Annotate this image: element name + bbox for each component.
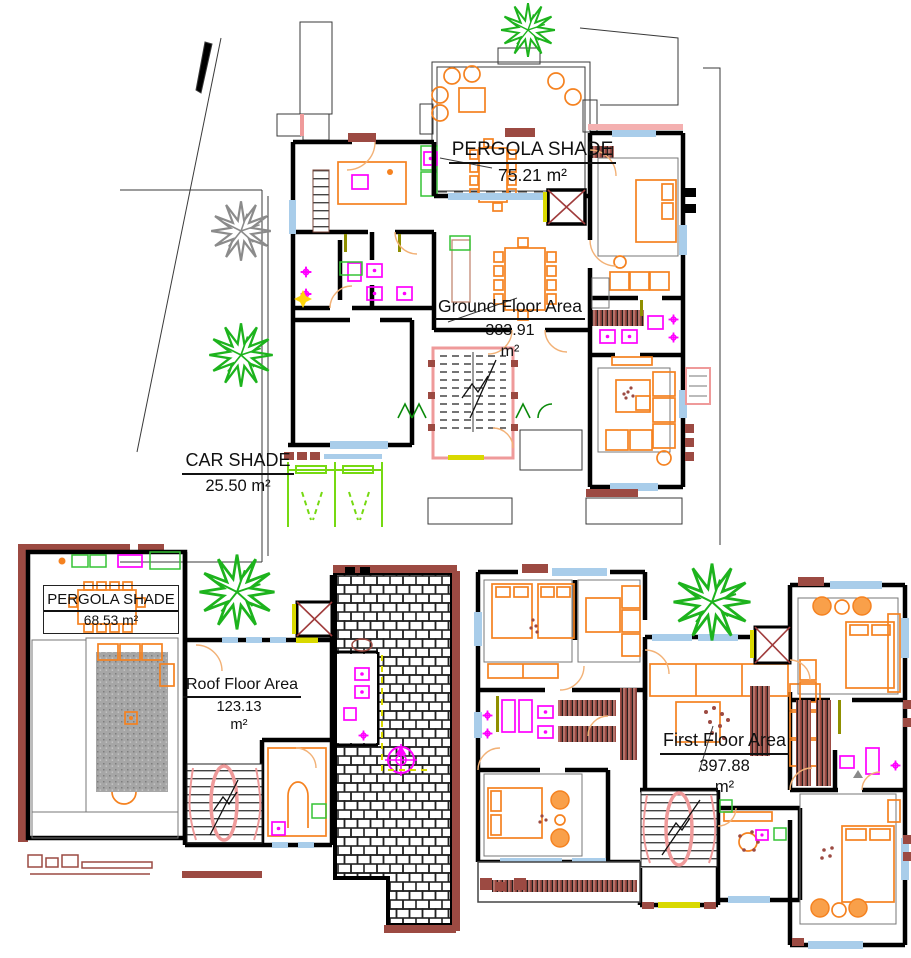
floor-area-unit: m² bbox=[642, 777, 807, 797]
tree-icon bbox=[501, 3, 555, 57]
car-shade-title: CAR SHADE bbox=[182, 450, 293, 475]
plant-icon bbox=[516, 404, 552, 418]
pergola-shade-title: PERGOLA SHADE bbox=[449, 138, 617, 164]
roof-store-room bbox=[268, 748, 326, 848]
floor-area-unit: m² bbox=[183, 717, 295, 735]
wardrobe bbox=[620, 688, 637, 760]
first-bedroom-suite bbox=[484, 580, 640, 690]
first-bedroom-left bbox=[484, 774, 582, 856]
tree-icon bbox=[674, 564, 751, 641]
roof-bathroom bbox=[337, 639, 377, 743]
wardrobe bbox=[558, 700, 616, 716]
floor-area-value: 397.88 bbox=[642, 756, 807, 776]
pergola-shade-area: 68.53 m² bbox=[44, 613, 178, 630]
light-symbol bbox=[294, 290, 312, 308]
floor-area-value: 123.13 bbox=[183, 699, 295, 717]
ground-pergola-label: PERGOLA SHADE 75.21 m² bbox=[430, 138, 635, 187]
roof-pergola-kitchenette bbox=[59, 552, 181, 569]
ground-ensuite-bathroom bbox=[592, 278, 678, 343]
first-bedroom-right-bottom bbox=[800, 794, 900, 924]
kitchen bbox=[313, 142, 406, 232]
first-bedroom-right-top bbox=[798, 597, 900, 702]
entry-steps bbox=[428, 498, 512, 524]
family-room bbox=[598, 357, 710, 465]
tree-icon bbox=[200, 555, 275, 630]
staircase-roof bbox=[187, 764, 262, 843]
pergola-shade-title: PERGOLA SHADE bbox=[44, 591, 178, 612]
first-floor-area-label: First Floor Area 397.88 m² bbox=[642, 730, 807, 797]
wardrobe bbox=[816, 700, 831, 786]
car-shade-label: CAR SHADE 25.50 m² bbox=[172, 450, 304, 496]
floor-area-title: Roof Floor Area bbox=[183, 675, 301, 698]
elevator-icon bbox=[292, 602, 332, 636]
first-balcony bbox=[478, 862, 640, 902]
pergola-shade-area: 75.21 m² bbox=[430, 165, 635, 186]
floor-area-title: First Floor Area bbox=[660, 730, 789, 755]
elevator-icon bbox=[543, 190, 585, 224]
roof-lounge bbox=[32, 638, 178, 838]
tree-icon bbox=[209, 323, 272, 386]
ground-bathrooms bbox=[294, 232, 417, 308]
first-bathroom-left bbox=[478, 688, 637, 770]
roof-floor-area-label: Roof Floor Area 123.13 m² bbox=[183, 675, 295, 735]
floor-plan-drawing: PERGOLA SHADE 75.21 m² Ground Floor Area… bbox=[0, 0, 911, 958]
terrace-steps bbox=[586, 498, 682, 524]
floor-area-value: 383.91 bbox=[420, 321, 600, 341]
roof-pergola-label: PERGOLA SHADE 68.53 m² bbox=[43, 585, 179, 634]
elevator-icon bbox=[750, 627, 790, 663]
staircase-first bbox=[641, 791, 717, 909]
ground-floor-area-label: Ground Floor Area 383.91 m² bbox=[420, 296, 600, 362]
pergola-lounge-furniture bbox=[432, 66, 581, 121]
entry-walkway bbox=[277, 22, 332, 140]
porch bbox=[520, 430, 582, 470]
roof-ledge bbox=[28, 855, 152, 874]
floor-area-unit: m² bbox=[420, 342, 600, 362]
floor-area-title: Ground Floor Area bbox=[435, 296, 585, 320]
car-shade-area: 25.50 m² bbox=[172, 476, 304, 496]
staircase-ground bbox=[428, 348, 518, 460]
wardrobe bbox=[558, 726, 616, 742]
